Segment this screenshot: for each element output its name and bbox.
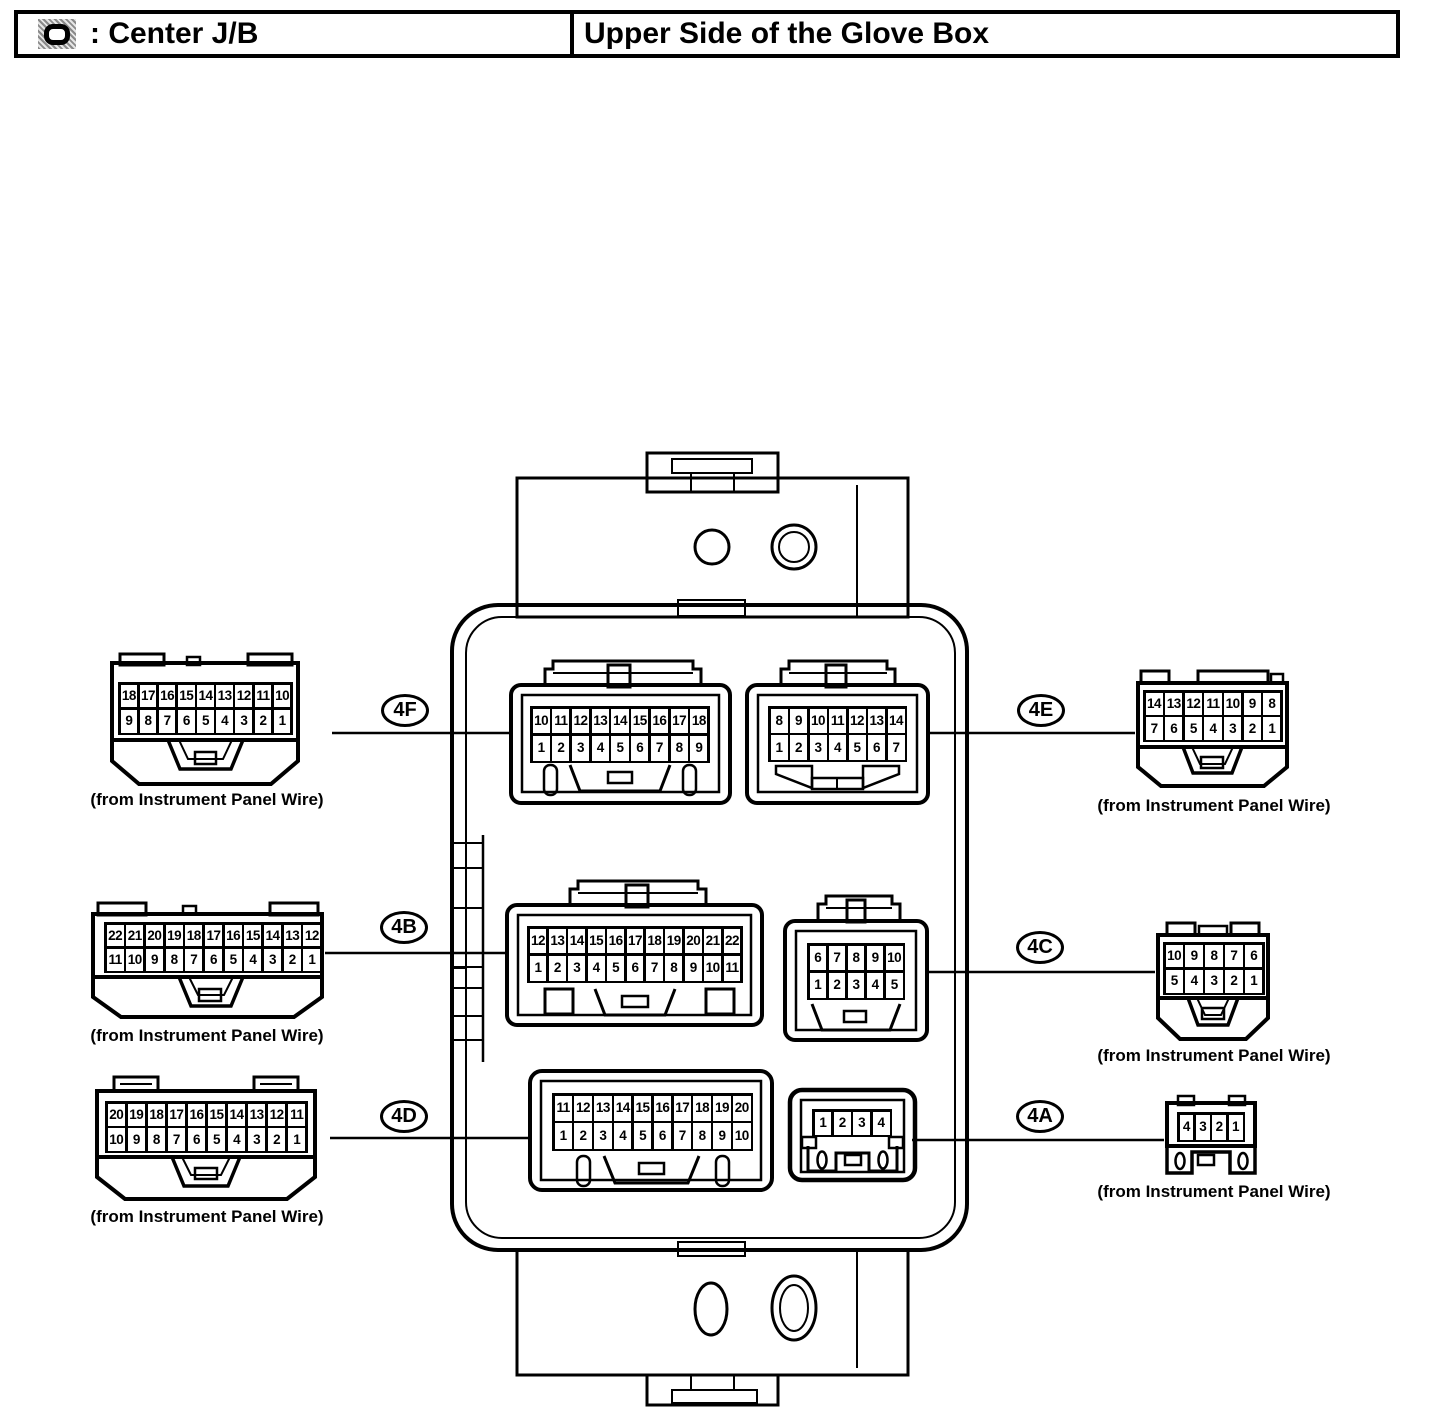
pin-4: 4 xyxy=(829,735,846,759)
pin-4: 4 xyxy=(1180,1115,1194,1140)
pin-14: 14 xyxy=(1146,693,1163,715)
pin-15: 15 xyxy=(244,925,261,947)
pin-14: 14 xyxy=(228,1104,246,1126)
pin-9: 9 xyxy=(1185,945,1202,968)
pin-11: 11 xyxy=(1204,693,1221,715)
pin-13: 13 xyxy=(248,1104,266,1126)
pin-13: 13 xyxy=(549,929,566,954)
pin-18: 18 xyxy=(646,929,663,954)
callout-4b: 4B xyxy=(380,911,428,944)
pin-11: 11 xyxy=(107,949,124,971)
pin-8: 8 xyxy=(1263,693,1280,715)
pin-6: 6 xyxy=(188,1128,206,1150)
pin-7: 7 xyxy=(1146,717,1163,739)
pin-13: 13 xyxy=(284,925,301,947)
pin-1: 1 xyxy=(1263,717,1280,739)
pin-11: 11 xyxy=(255,685,272,708)
pin-2: 2 xyxy=(834,1112,851,1135)
pin-14: 14 xyxy=(197,685,214,708)
pin-16: 16 xyxy=(607,929,624,954)
pin-10: 10 xyxy=(274,685,291,708)
connector-4a-pin-grid: 1234 xyxy=(812,1109,892,1137)
pin-1: 1 xyxy=(810,973,827,998)
external-middle-left-pin-grid: 22212019181716151413121110987654321 xyxy=(104,922,323,973)
pin-17: 17 xyxy=(205,925,222,947)
pin-7: 7 xyxy=(829,946,846,971)
pin-8: 8 xyxy=(848,946,865,971)
pin-2: 2 xyxy=(1244,717,1261,739)
pin-6: 6 xyxy=(810,946,827,971)
pin-16: 16 xyxy=(651,709,668,734)
pin-2: 2 xyxy=(1225,970,1242,993)
caption-bottom-left: (from Instrument Panel Wire) xyxy=(90,1207,323,1227)
pin-13: 13 xyxy=(1165,693,1182,715)
pin-6: 6 xyxy=(205,949,222,971)
pin-9: 9 xyxy=(690,736,707,761)
pin-1: 1 xyxy=(274,710,291,733)
pin-6: 6 xyxy=(178,710,195,733)
pin-12: 12 xyxy=(1185,693,1202,715)
pin-4: 4 xyxy=(1185,970,1202,993)
pin-20: 20 xyxy=(108,1104,126,1126)
pin-8: 8 xyxy=(166,949,183,971)
pin-11: 11 xyxy=(724,956,741,981)
pin-10: 10 xyxy=(533,709,550,734)
caption-top-right: (from Instrument Panel Wire) xyxy=(1097,796,1330,816)
pin-3: 3 xyxy=(848,973,865,998)
pin-18: 18 xyxy=(185,925,202,947)
pin-10: 10 xyxy=(108,1128,126,1150)
pin-18: 18 xyxy=(148,1104,166,1126)
pin-7: 7 xyxy=(168,1128,186,1150)
pin-5: 5 xyxy=(197,710,214,733)
pin-19: 19 xyxy=(713,1096,730,1121)
connector-4e-pin-grid: 8910111213141234567 xyxy=(768,706,907,762)
connector-4b-pin-grid: 12131415161718192021221234567891011 xyxy=(527,926,743,983)
pin-7: 7 xyxy=(646,956,663,981)
external-top-right-pin-grid: 1413121110987654321 xyxy=(1143,690,1283,742)
pin-1: 1 xyxy=(555,1123,572,1148)
pin-5: 5 xyxy=(886,973,903,998)
pin-14: 14 xyxy=(568,929,585,954)
pin-12: 12 xyxy=(572,709,589,734)
pin-12: 12 xyxy=(235,685,252,708)
pin-20: 20 xyxy=(733,1096,750,1121)
pin-1: 1 xyxy=(533,736,550,761)
pin-15: 15 xyxy=(208,1104,226,1126)
pin-5: 5 xyxy=(611,736,628,761)
callout-4c: 4C xyxy=(1016,931,1064,964)
pin-9: 9 xyxy=(128,1128,146,1150)
pin-16: 16 xyxy=(654,1096,671,1121)
pin-13: 13 xyxy=(868,709,885,733)
pin-2: 2 xyxy=(284,949,301,971)
pin-6: 6 xyxy=(868,735,885,759)
pin-9: 9 xyxy=(121,710,138,733)
pin-1: 1 xyxy=(815,1112,832,1135)
pin-11: 11 xyxy=(555,1096,572,1121)
caption-middle-left: (from Instrument Panel Wire) xyxy=(90,1026,323,1046)
pin-9: 9 xyxy=(713,1123,730,1148)
connector-4f-pin-grid: 101112131415161718123456789 xyxy=(530,706,710,763)
pin-15: 15 xyxy=(631,709,648,734)
pin-22: 22 xyxy=(107,925,124,947)
pin-19: 19 xyxy=(166,925,183,947)
pin-16: 16 xyxy=(188,1104,206,1126)
pin-14: 14 xyxy=(611,709,628,734)
pin-10: 10 xyxy=(126,949,143,971)
connector-4d-pin-grid: 1112131415161718192012345678910 xyxy=(552,1093,753,1151)
pin-5: 5 xyxy=(607,956,624,981)
external-middle-right-pin-grid: 10987654321 xyxy=(1163,942,1265,995)
caption-bottom-right: (from Instrument Panel Wire) xyxy=(1097,1182,1330,1202)
pin-3: 3 xyxy=(1224,717,1241,739)
page: : Center J/B Upper Side of the Glove Box xyxy=(0,0,1440,1422)
pin-5: 5 xyxy=(634,1123,651,1148)
callout-4a: 4A xyxy=(1016,1100,1064,1133)
pin-8: 8 xyxy=(148,1128,166,1150)
pin-6: 6 xyxy=(654,1123,671,1148)
pin-7: 7 xyxy=(651,736,668,761)
pin-8: 8 xyxy=(1205,945,1222,968)
pin-4: 4 xyxy=(614,1123,631,1148)
pin-17: 17 xyxy=(627,929,644,954)
pin-4: 4 xyxy=(867,973,884,998)
pin-10: 10 xyxy=(886,946,903,971)
pin-15: 15 xyxy=(588,929,605,954)
pin-2: 2 xyxy=(268,1128,286,1150)
pin-8: 8 xyxy=(693,1123,710,1148)
pin-1: 1 xyxy=(288,1128,306,1150)
pin-16: 16 xyxy=(225,925,242,947)
pin-5: 5 xyxy=(225,949,242,971)
pin-19: 19 xyxy=(128,1104,146,1126)
pin-20: 20 xyxy=(146,925,163,947)
pin-10: 10 xyxy=(810,709,827,733)
pin-14: 14 xyxy=(264,925,281,947)
pin-17: 17 xyxy=(168,1104,186,1126)
pin-3: 3 xyxy=(853,1112,870,1135)
pin-3: 3 xyxy=(235,710,252,733)
pin-9: 9 xyxy=(685,956,702,981)
pin-3: 3 xyxy=(1205,970,1222,993)
pin-14: 14 xyxy=(888,709,905,733)
connector-4c-pin-grid: 67891012345 xyxy=(807,943,905,1000)
pin-2: 2 xyxy=(549,956,566,981)
pin-12: 12 xyxy=(574,1096,591,1121)
pin-1: 1 xyxy=(530,956,547,981)
pin-19: 19 xyxy=(665,929,682,954)
pin-12: 12 xyxy=(268,1104,286,1126)
pin-4: 4 xyxy=(244,949,261,971)
pin-1: 1 xyxy=(1229,1115,1243,1140)
pin-3: 3 xyxy=(1196,1115,1210,1140)
pin-4: 4 xyxy=(873,1112,890,1135)
pin-3: 3 xyxy=(264,949,281,971)
pin-12: 12 xyxy=(849,709,866,733)
pin-17: 17 xyxy=(674,1096,691,1121)
pin-20: 20 xyxy=(685,929,702,954)
pin-15: 15 xyxy=(634,1096,651,1121)
pin-2: 2 xyxy=(790,735,807,759)
pin-2: 2 xyxy=(574,1123,591,1148)
pin-15: 15 xyxy=(178,685,195,708)
pin-18: 18 xyxy=(121,685,138,708)
external-bottom-right-pin-grid: 4321 xyxy=(1177,1112,1245,1142)
pin-2: 2 xyxy=(552,736,569,761)
pin-3: 3 xyxy=(594,1123,611,1148)
pin-10: 10 xyxy=(704,956,721,981)
pin-5: 5 xyxy=(208,1128,226,1150)
pin-11: 11 xyxy=(288,1104,306,1126)
pin-11: 11 xyxy=(552,709,569,734)
pin-16: 16 xyxy=(159,685,176,708)
pin-8: 8 xyxy=(671,736,688,761)
pin-13: 13 xyxy=(594,1096,611,1121)
callout-4f: 4F xyxy=(381,694,429,727)
pin-18: 18 xyxy=(690,709,707,734)
pin-2: 2 xyxy=(1212,1115,1226,1140)
external-top-left-pin-grid: 181716151413121110987654321 xyxy=(118,682,293,735)
pin-1: 1 xyxy=(303,949,320,971)
pin-7: 7 xyxy=(159,710,176,733)
pin-5: 5 xyxy=(849,735,866,759)
pin-12: 12 xyxy=(530,929,547,954)
pin-8: 8 xyxy=(771,709,788,733)
pin-6: 6 xyxy=(627,956,644,981)
external-bottom-left-pin-grid: 2019181716151413121110987654321 xyxy=(105,1101,308,1153)
pin-21: 21 xyxy=(126,925,143,947)
pin-9: 9 xyxy=(146,949,163,971)
pin-8: 8 xyxy=(665,956,682,981)
pin-9: 9 xyxy=(790,709,807,733)
pin-2: 2 xyxy=(255,710,272,733)
callout-4e: 4E xyxy=(1017,694,1065,727)
pin-13: 13 xyxy=(216,685,233,708)
pin-7: 7 xyxy=(674,1123,691,1148)
pin-17: 17 xyxy=(140,685,157,708)
pin-4: 4 xyxy=(588,956,605,981)
pin-2: 2 xyxy=(829,973,846,998)
pin-10: 10 xyxy=(733,1123,750,1148)
pin-4: 4 xyxy=(1204,717,1221,739)
pin-7: 7 xyxy=(1225,945,1242,968)
pin-10: 10 xyxy=(1224,693,1241,715)
pin-4: 4 xyxy=(592,736,609,761)
pin-5: 5 xyxy=(1166,970,1183,993)
pin-11: 11 xyxy=(829,709,846,733)
pin-22: 22 xyxy=(724,929,741,954)
pin-6: 6 xyxy=(631,736,648,761)
pin-3: 3 xyxy=(248,1128,266,1150)
pin-7: 7 xyxy=(185,949,202,971)
pin-3: 3 xyxy=(572,736,589,761)
caption-middle-right: (from Instrument Panel Wire) xyxy=(1097,1046,1330,1066)
pin-21: 21 xyxy=(704,929,721,954)
pin-4: 4 xyxy=(228,1128,246,1150)
pin-8: 8 xyxy=(140,710,157,733)
callout-4d: 4D xyxy=(380,1100,428,1133)
caption-top-left: (from Instrument Panel Wire) xyxy=(90,790,323,810)
pin-6: 6 xyxy=(1165,717,1182,739)
pin-4: 4 xyxy=(216,710,233,733)
pin-9: 9 xyxy=(867,946,884,971)
pin-13: 13 xyxy=(592,709,609,734)
pin-1: 1 xyxy=(771,735,788,759)
pin-10: 10 xyxy=(1166,945,1183,968)
pin-1: 1 xyxy=(1245,970,1262,993)
pin-3: 3 xyxy=(810,735,827,759)
pin-6: 6 xyxy=(1245,945,1262,968)
pin-12: 12 xyxy=(303,925,320,947)
pin-17: 17 xyxy=(671,709,688,734)
pin-14: 14 xyxy=(614,1096,631,1121)
pin-3: 3 xyxy=(568,956,585,981)
pin-5: 5 xyxy=(1185,717,1202,739)
pin-18: 18 xyxy=(693,1096,710,1121)
pin-9: 9 xyxy=(1244,693,1261,715)
pin-7: 7 xyxy=(888,735,905,759)
